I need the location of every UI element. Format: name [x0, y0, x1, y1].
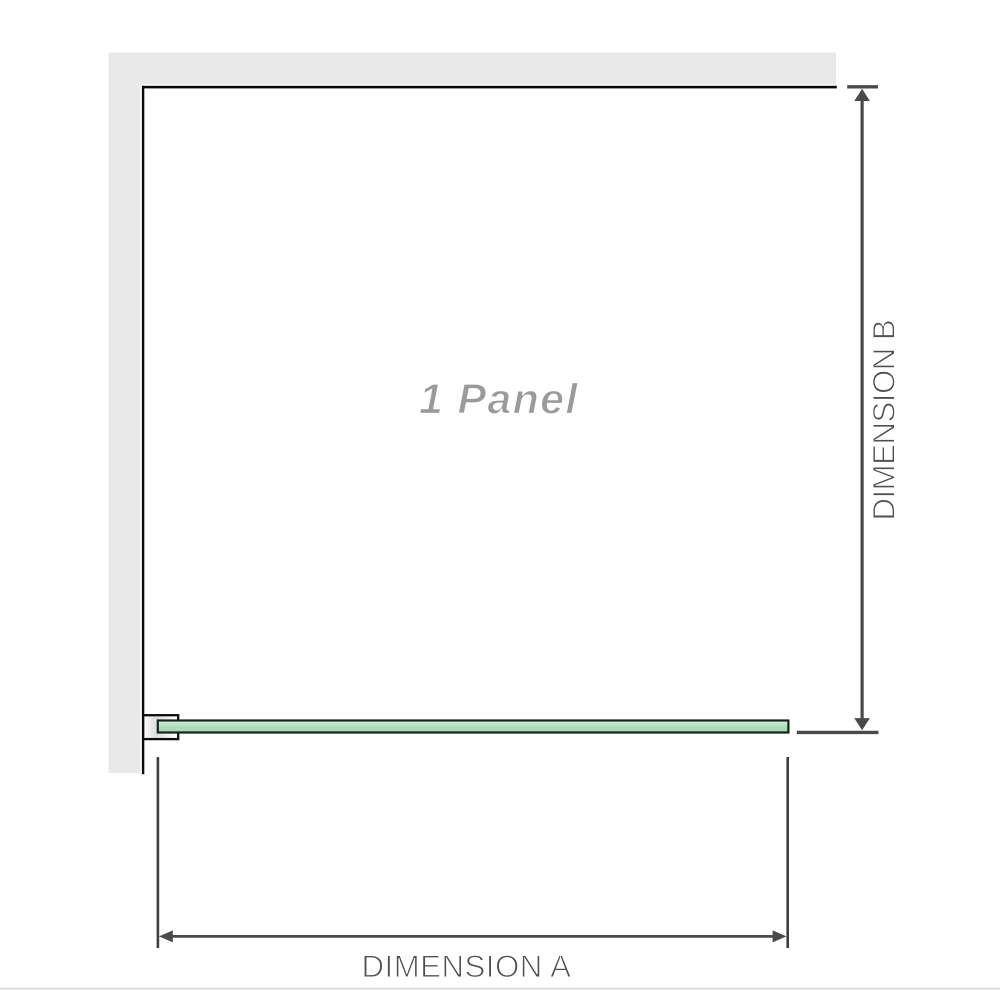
svg-text:DIMENSION B: DIMENSION B — [867, 320, 902, 521]
svg-text:DIMENSION A: DIMENSION A — [362, 949, 572, 984]
svg-text:1 Panel: 1 Panel — [419, 375, 579, 423]
